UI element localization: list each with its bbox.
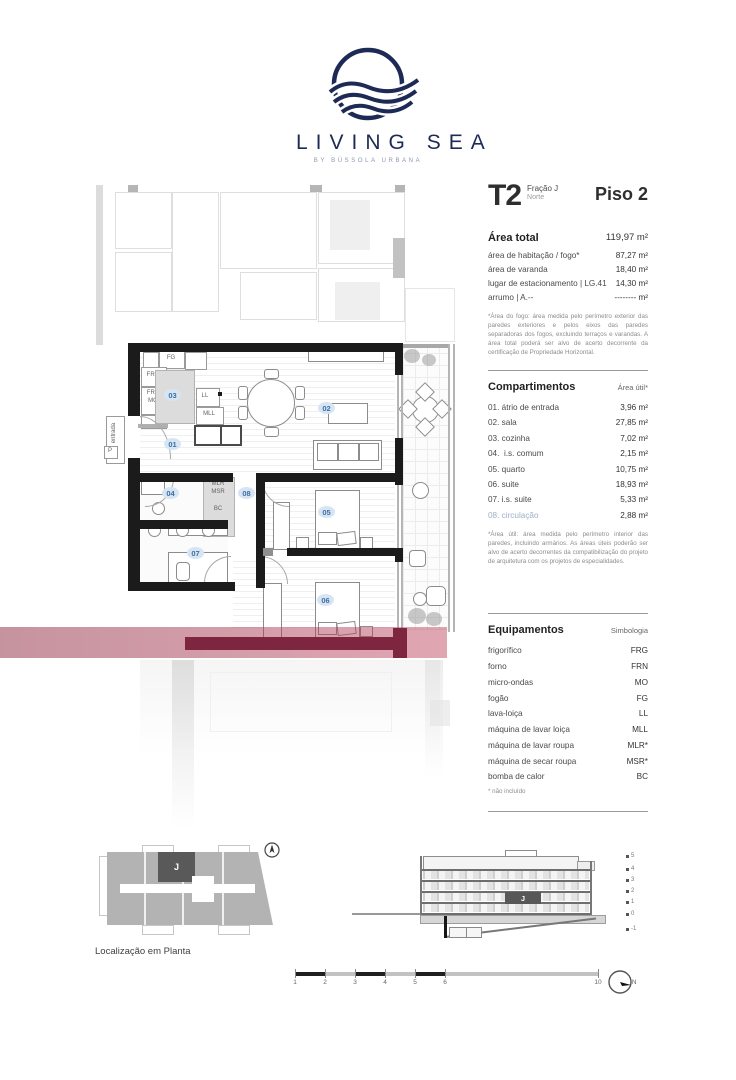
scale-tick-label: 10 bbox=[594, 979, 601, 986]
equipment-row: micro-ondas MO bbox=[488, 675, 648, 691]
compartment-num: 08. bbox=[488, 511, 499, 520]
red-highlight-wall bbox=[185, 637, 403, 650]
compartments-title: Compartimentos bbox=[488, 381, 575, 393]
wall bbox=[287, 548, 403, 556]
logo-mark-icon bbox=[296, 42, 440, 126]
toilet bbox=[176, 562, 190, 581]
balcony-railing bbox=[453, 344, 455, 632]
equipment-name: lava-loiça bbox=[488, 706, 523, 722]
compartment-row: 03. cozinha 7,02 m² bbox=[488, 431, 648, 446]
elevation-level-label: 1 bbox=[626, 899, 634, 905]
logo-title: LIVING SEA bbox=[296, 131, 440, 155]
room-label-05: 05 bbox=[318, 506, 335, 518]
compartment-value: 3,96 m² bbox=[620, 400, 648, 415]
wall bbox=[128, 458, 140, 522]
compartment-row: 05. quarto 10,75 m² bbox=[488, 462, 648, 477]
dining-table bbox=[247, 379, 295, 427]
compartment-name: circulação bbox=[502, 511, 539, 520]
kitchen-counter-end bbox=[194, 425, 222, 446]
plant bbox=[408, 608, 426, 624]
scale-tick-label: 5 bbox=[413, 979, 417, 986]
equipment-symbol: MLL bbox=[632, 722, 648, 738]
glazing bbox=[401, 375, 403, 438]
scale-segment bbox=[385, 972, 415, 976]
divider bbox=[488, 370, 648, 371]
dining-chair bbox=[264, 369, 279, 379]
dining-chair bbox=[295, 386, 305, 400]
elevation-level-label: -1 bbox=[626, 926, 636, 932]
appliance-label-fg: FG bbox=[162, 355, 180, 361]
sofa-seat bbox=[338, 443, 359, 461]
equipment-symbol: MO bbox=[635, 675, 648, 691]
equipment-symbol: FRN bbox=[631, 659, 648, 675]
logo: LIVING SEA BY BÚSSOLA URBANA bbox=[296, 42, 440, 164]
compartment-name: cozinha bbox=[502, 434, 530, 443]
compartment-row: 06. suite 18,93 m² bbox=[488, 477, 648, 492]
area-row-label: área de habitação / fogo* bbox=[488, 249, 580, 263]
area-footnote: *Área do fogo: área medida pelo perímetr… bbox=[488, 313, 648, 358]
divider bbox=[488, 811, 648, 812]
plant bbox=[426, 612, 442, 626]
dining-chair bbox=[238, 406, 248, 420]
fraction-label: Fração J bbox=[527, 184, 558, 193]
sideboard bbox=[308, 351, 384, 362]
wall bbox=[395, 548, 403, 562]
compartment-num: 04. bbox=[488, 449, 499, 458]
equipment-row: fogão FG bbox=[488, 691, 648, 707]
elevation-level-label: 2 bbox=[626, 888, 634, 894]
compartment-num: 02. bbox=[488, 418, 499, 427]
area-row-value: -------- m² bbox=[614, 291, 648, 305]
wardrobe bbox=[273, 502, 290, 550]
area-row: lugar de estacionamento | LG.41 14,30 m² bbox=[488, 277, 648, 291]
site-plan-unit-j: J bbox=[158, 852, 195, 882]
sofa-seat bbox=[359, 443, 379, 461]
site-plan-caption: Localização em Planta bbox=[95, 946, 191, 957]
wall bbox=[128, 520, 228, 529]
area-row-label: lugar de estacionamento | LG.41 bbox=[488, 277, 607, 291]
room-label-04: 04 bbox=[162, 487, 179, 499]
compartment-row: 07. i.s. suite 5,33 m² bbox=[488, 492, 648, 507]
equipment-symbol: FG bbox=[637, 691, 648, 707]
equipment-symbol: BC bbox=[637, 769, 648, 785]
balcony-railing bbox=[448, 344, 450, 632]
compartment-name: átrio de entrada bbox=[502, 403, 559, 412]
compartment-name: i.s. comum bbox=[504, 449, 544, 458]
compartment-num: 07. bbox=[488, 495, 499, 504]
typology: T2 bbox=[488, 182, 521, 209]
unit-info-panel: T2 Fração J Norte Piso 2 Área total 119,… bbox=[488, 182, 648, 822]
area-row-label: arrumo | A.-- bbox=[488, 291, 533, 305]
wall bbox=[395, 438, 403, 478]
elevation-level-label: 5 bbox=[626, 853, 634, 859]
compartment-num: 05. bbox=[488, 465, 499, 474]
balcony-stool bbox=[426, 586, 446, 606]
equipment-row: máquina de secar roupa MSR* bbox=[488, 754, 648, 770]
compartment-num: 01. bbox=[488, 403, 499, 412]
compartment-num: 06. bbox=[488, 480, 499, 489]
elevation-level-label: 3 bbox=[626, 877, 634, 883]
wall bbox=[128, 473, 233, 482]
area-row: área de varanda 18,40 m² bbox=[488, 263, 648, 277]
dining-chair bbox=[238, 386, 248, 400]
area-total-label: Área total bbox=[488, 231, 539, 245]
dining-chair bbox=[264, 427, 279, 437]
room-label-08: 08 bbox=[238, 487, 255, 499]
site-plan-core bbox=[192, 876, 214, 902]
wall bbox=[128, 343, 403, 352]
compartment-row: 01. átrio de entrada 3,96 m² bbox=[488, 400, 648, 415]
elevation-unit-j: J bbox=[505, 892, 541, 904]
equipment-name: máquina de lavar roupa bbox=[488, 738, 574, 754]
equipment-title: Equipamentos bbox=[488, 624, 564, 636]
ground-line bbox=[352, 913, 420, 915]
area-row-value: 14,30 m² bbox=[616, 277, 648, 291]
scale-segment bbox=[445, 972, 598, 976]
wall bbox=[128, 582, 235, 591]
entrance-label: entrada bbox=[111, 423, 117, 443]
compartments-column-header: Área útil* bbox=[618, 383, 648, 392]
compartments-section: Compartimentos Área útil* 01. átrio de e… bbox=[488, 381, 648, 567]
wall bbox=[395, 473, 403, 485]
scale-segment bbox=[355, 972, 385, 976]
equipment-symbol: FRG bbox=[631, 643, 648, 659]
equipment-row: máquina de lavar roupa MLR* bbox=[488, 738, 648, 754]
compartment-value: 2,15 m² bbox=[620, 446, 648, 461]
north-compass-icon bbox=[263, 841, 281, 859]
area-row: arrumo | A.-- -------- m² bbox=[488, 291, 648, 305]
equipment-footnote: * não incluído bbox=[488, 788, 648, 797]
equipment-name: micro-ondas bbox=[488, 675, 533, 691]
elevation-level-label: 4 bbox=[626, 866, 634, 872]
scale-segment bbox=[325, 972, 355, 976]
plant bbox=[422, 354, 436, 366]
room-label-07: 07 bbox=[187, 547, 204, 559]
pillow bbox=[336, 531, 356, 546]
dining-chair bbox=[295, 406, 305, 420]
red-highlight-wall bbox=[393, 628, 407, 658]
compartment-value: 27,85 m² bbox=[616, 415, 648, 430]
tap-icon bbox=[218, 392, 222, 396]
equipment-section: Equipamentos Simbologia frigorífico FRG … bbox=[488, 624, 648, 797]
orientation-label: Norte bbox=[527, 194, 558, 201]
scale-tick-label: 2 bbox=[323, 979, 327, 986]
compartment-value: 18,93 m² bbox=[616, 477, 648, 492]
balcony-stool bbox=[412, 482, 429, 499]
compartment-value: 10,75 m² bbox=[616, 462, 648, 477]
compartment-row: 04. i.s. comum 2,15 m² bbox=[488, 446, 648, 461]
glazing bbox=[397, 375, 399, 438]
equipment-name: máquina de lavar loiça bbox=[488, 722, 570, 738]
sofa-seat bbox=[317, 443, 338, 461]
fraction-block: Fração J Norte bbox=[527, 184, 558, 201]
equipment-row: bomba de calor BC bbox=[488, 769, 648, 785]
equipment-name: bomba de calor bbox=[488, 769, 544, 785]
floor-label: Piso 2 bbox=[595, 184, 648, 205]
compartment-row: 08. circulação 2,88 m² bbox=[488, 508, 648, 523]
scale-tick-label: 3 bbox=[353, 979, 357, 986]
compartment-value: 2,88 m² bbox=[620, 508, 648, 523]
kitchen-cabinet bbox=[185, 352, 207, 370]
area-row-label: área de varanda bbox=[488, 263, 548, 277]
compartment-num: 03. bbox=[488, 434, 499, 443]
scale-segment bbox=[295, 972, 325, 976]
glazing bbox=[397, 562, 399, 628]
balcony-stool bbox=[413, 592, 427, 606]
room-label-02: 02 bbox=[318, 402, 335, 414]
scale-segment bbox=[415, 972, 445, 976]
scale-tick-label: 6 bbox=[443, 979, 447, 986]
elevation-level-label: 0 bbox=[626, 911, 634, 917]
balcony-edge bbox=[403, 344, 448, 348]
compartment-value: 7,02 m² bbox=[620, 431, 648, 446]
compartments-footnote: *Área útil: área medida pelo perímetro i… bbox=[488, 531, 648, 567]
logo-subtitle: BY BÚSSOLA URBANA bbox=[296, 158, 440, 164]
compartment-name: quarto bbox=[502, 465, 525, 474]
elevation-retaining-wall bbox=[444, 916, 447, 938]
area-row: área de habitação / fogo* 87,27 m² bbox=[488, 249, 648, 263]
compartment-name: i.s. suite bbox=[502, 495, 532, 504]
room-label-06: 06 bbox=[317, 594, 334, 606]
area-row-value: 18,40 m² bbox=[616, 263, 648, 277]
scale-tick-label: 1 bbox=[293, 979, 297, 986]
equipment-symbol: LL bbox=[639, 706, 648, 722]
appliance-label-msr: MSR bbox=[206, 489, 230, 495]
compartment-value: 5,33 m² bbox=[620, 492, 648, 507]
glazing bbox=[397, 485, 399, 548]
equipment-column-header: Simbologia bbox=[611, 626, 648, 635]
wall bbox=[263, 548, 273, 556]
room-label-03: 03 bbox=[164, 389, 181, 401]
plant bbox=[404, 349, 420, 363]
area-summary: Área total 119,97 m² área de habitação /… bbox=[488, 231, 648, 358]
meter-label: P bbox=[104, 448, 116, 454]
wall bbox=[256, 482, 265, 588]
pillow bbox=[318, 532, 337, 545]
site-plan-corridor bbox=[120, 884, 255, 893]
plan-sheet: LIVING SEA BY BÚSSOLA URBANA FG FRG bbox=[0, 0, 736, 1080]
equipment-row: máquina de lavar loiça MLL bbox=[488, 722, 648, 738]
compartment-name: sala bbox=[502, 418, 517, 427]
equipment-symbol: MSR* bbox=[627, 754, 648, 770]
balcony-stool bbox=[409, 550, 426, 567]
divider bbox=[488, 613, 648, 614]
equipment-name: fogão bbox=[488, 691, 509, 707]
glazing bbox=[401, 485, 403, 548]
scale-tick-label: 4 bbox=[383, 979, 387, 986]
equipment-row: lava-loiça LL bbox=[488, 706, 648, 722]
area-total-value: 119,97 m² bbox=[606, 231, 648, 245]
compartment-row: 02. sala 27,85 m² bbox=[488, 415, 648, 430]
equipment-row: frigorífico FRG bbox=[488, 643, 648, 659]
north-label: N bbox=[632, 980, 636, 986]
equipment-symbol: MLR* bbox=[628, 738, 648, 754]
wall bbox=[128, 343, 140, 416]
appliance-label-ll: LL bbox=[198, 393, 212, 399]
kitchen-counter-end bbox=[220, 425, 242, 446]
glazing bbox=[401, 562, 403, 628]
equipment-name: forno bbox=[488, 659, 507, 675]
wall bbox=[128, 520, 140, 591]
equipment-name: frigorífico bbox=[488, 643, 522, 659]
area-row-value: 87,27 m² bbox=[616, 249, 648, 263]
unit-header: T2 Fração J Norte Piso 2 bbox=[488, 182, 648, 209]
appliance-label-mll: MLL bbox=[198, 411, 220, 417]
equipment-name: máquina de secar roupa bbox=[488, 754, 576, 770]
appliance-label-bc: BC bbox=[206, 506, 230, 512]
compartment-name: suite bbox=[502, 480, 519, 489]
wall bbox=[395, 343, 403, 375]
wall bbox=[256, 473, 403, 482]
equipment-row: forno FRN bbox=[488, 659, 648, 675]
room-label-01: 01 bbox=[164, 438, 181, 450]
